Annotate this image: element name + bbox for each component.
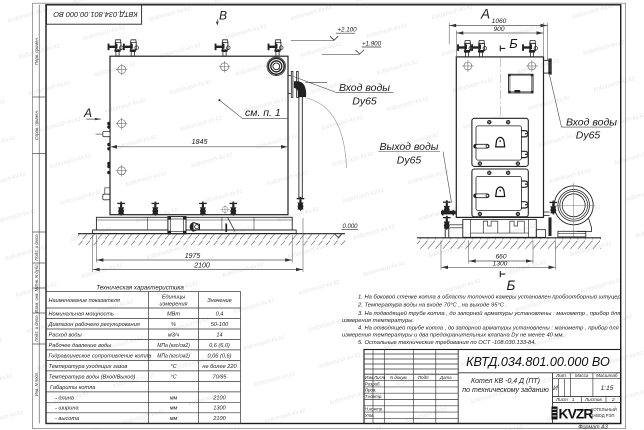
svg-text:Разраб.: Разраб. [365,381,381,386]
svg-text:Единицы: Единицы [162,295,185,301]
svg-text:Б: Б [509,36,518,51]
svg-text:0,4: 0,4 [216,311,224,317]
svg-text:Рабочее давление воды: Рабочее давление воды [49,343,112,349]
svg-text:Гидравлическое сопротивление к: Гидравлическое сопротивление котла [49,353,152,359]
svg-text:Температура уходящих газов: Температура уходящих газов [49,364,128,370]
svg-text:Вход воды: Вход воды [566,116,617,128]
svg-text:МВт: МВт [167,311,180,317]
svg-text:3. На подводящей трубе котла: 3. На подводящей трубе котла , до запорн… [358,310,620,317]
svg-text:Инв. N подл.: Инв. N подл. [34,372,39,396]
svg-text:измерения температуры.: измерения температуры. [342,318,414,324]
svg-text:Б: Б [507,278,516,293]
svg-text:Справ. примен.: Справ. примен. [34,110,39,140]
svg-text:МПа (кгс/см2): МПа (кгс/см2) [157,353,190,359]
svg-text:2100: 2100 [212,395,226,401]
svg-text:В: В [219,9,227,23]
svg-text:2100: 2100 [193,262,210,269]
svg-text:2: 2 [611,397,615,402]
svg-text:Масштаб: Масштаб [596,373,618,378]
svg-text:50-100: 50-100 [211,322,229,328]
svg-text:Перв. примен.: Перв. примен. [34,37,39,65]
svg-text:°С: °С [170,374,177,380]
svg-text:Формат А3: Формат А3 [578,425,608,430]
svg-text:1. На боковой стенке котла в: 1. На боковой стенке котла в области топ… [358,293,621,300]
svg-text:5. Остальные технические треб: 5. Остальные технические требования по О… [358,340,536,346]
svg-text:КВТД.034.801.00.000 ВО: КВТД.034.801.00.000 ВО [53,10,138,19]
svg-text:Лист: Лист [555,397,568,402]
svg-text:мм: мм [170,395,178,401]
svg-text:Утв.: Утв. [365,413,375,418]
svg-text:КВТД.034.801.00.000 ВО: КВТД.034.801.00.000 ВО [466,355,610,369]
svg-text:1975: 1975 [185,253,201,260]
svg-text:- высота: - высота [55,416,79,422]
svg-text:- ширина: - ширина [55,406,79,412]
svg-text:Дата: Дата [439,375,452,380]
svg-text:0,6 (6,0): 0,6 (6,0) [209,343,230,349]
svg-text:+1.900: +1.900 [362,41,382,48]
svg-text:N докум.: N докум. [390,375,408,380]
svg-text:Расход воды: Расход воды [49,332,82,338]
svg-text:Т.контр.: Т.контр. [365,394,383,399]
svg-text:Температура воды (Вход/Выход): Температура воды (Вход/Выход) [49,374,136,380]
svg-text:Подп. и дата: Подп. и дата [34,234,39,261]
svg-text:Dy65: Dy65 [397,154,422,166]
svg-text:4. На отводящей трубе котла ,: 4. На отводящей трубе котла , до запорно… [358,325,619,332]
svg-text:измерения: измерения [160,302,188,308]
svg-text:2100: 2100 [212,416,226,422]
svg-text:Лит.: Лит. [555,373,567,378]
svg-text:Инв. N дубл.: Инв. N дубл. [34,263,39,287]
svg-text:Лист: Лист [373,375,386,380]
svg-text:2. Температура воды на входе: 2. Температура воды на входе 70°С , на в… [357,303,507,309]
svg-text:Взам. инв. N: Взам. инв. N [34,287,39,312]
svg-text:Значение: Значение [207,298,232,304]
svg-text:Подп. и дата: Подп. и дата [34,315,39,342]
svg-text:м3/ч: м3/ч [168,332,179,338]
svg-text:+2.100: +2.100 [337,27,357,34]
svg-text:Техническая характеристика: Техническая характеристика [96,285,184,292]
svg-text:Масса: Масса [575,373,589,378]
svg-text:не более 220: не более 220 [202,364,237,370]
svg-text:1300: 1300 [493,261,508,268]
svg-text:Листов: Листов [584,397,602,402]
svg-text:Котел КВ -0,4 Д (ПТ): Котел КВ -0,4 Д (ПТ) [471,378,540,385]
svg-text:1:15: 1:15 [601,385,614,392]
svg-text:Номинальная мощность: Номинальная мощность [49,311,114,317]
svg-text:измерения температуры и два пр: измерения температуры и два предохраните… [342,333,564,339]
svg-text:14: 14 [216,332,222,338]
svg-text:1845: 1845 [192,137,209,146]
svg-text:Н.контр.: Н.контр. [365,407,384,412]
svg-text:KVZR: KVZR [559,407,594,422]
svg-text:Пров.: Пров. [365,388,377,393]
svg-text:°С: °С [170,364,177,370]
svg-text:А: А [480,7,490,22]
svg-text:900: 900 [493,26,504,33]
svg-text:ЗАВОД РЭП: ЗАВОД РЭП [591,413,614,418]
svg-text:см. п. 1: см. п. 1 [245,107,281,119]
svg-text:МПа (кгс/см2): МПа (кгс/см2) [157,343,190,349]
svg-text:Выход воды: Выход воды [379,141,438,153]
svg-text:Наименование показателя: Наименование показателя [49,298,120,304]
svg-text:Изм.: Изм. [365,375,374,380]
svg-text:0,06 (0,6): 0,06 (0,6) [208,353,232,359]
svg-text:мм: мм [170,416,178,422]
svg-text:70/95: 70/95 [213,374,228,380]
svg-text:Dy65: Dy65 [576,129,601,141]
svg-text:по техническому заданию: по техническому заданию [462,386,549,394]
svg-text:1060: 1060 [492,18,507,25]
svg-text:%: % [171,322,176,328]
svg-text:Вход воды: Вход воды [339,82,390,94]
svg-text:Диапазон рабочего регулировани: Диапазон рабочего регулирования [48,322,140,328]
svg-text:1: 1 [572,397,575,402]
svg-text:мм: мм [170,406,178,412]
svg-text:КОТЕЛЬНЫЙ: КОТЕЛЬНЫЙ [591,407,617,412]
svg-text:А: А [83,106,92,120]
svg-text:И: И [553,385,558,392]
svg-text:- длина: - длина [55,395,74,401]
svg-text:Dy65: Dy65 [352,96,377,108]
svg-text:Габариты котла: Габариты котла [50,385,95,391]
svg-text:Подп.: Подп. [418,375,430,380]
svg-text:1300: 1300 [213,406,226,412]
